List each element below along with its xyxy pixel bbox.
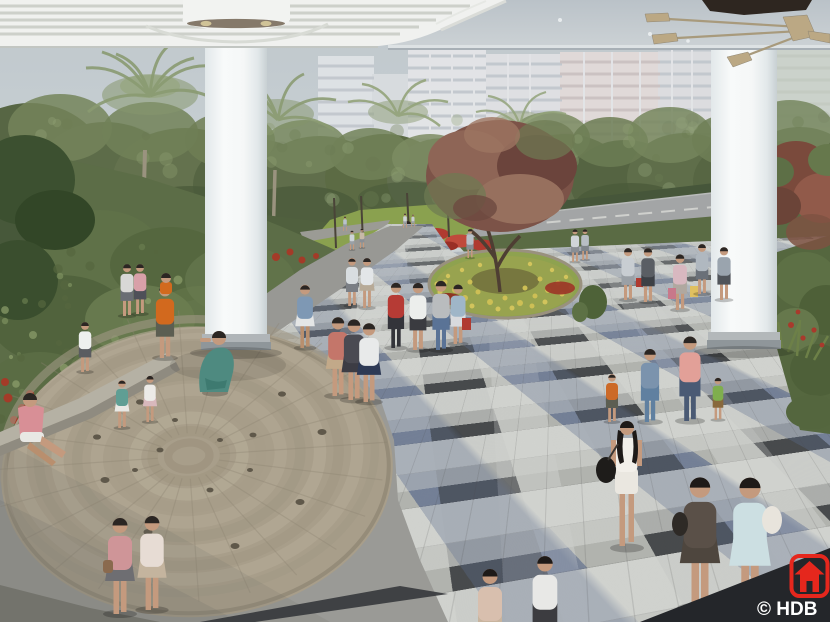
svg-text:© HDB: © HDB [757,599,817,620]
